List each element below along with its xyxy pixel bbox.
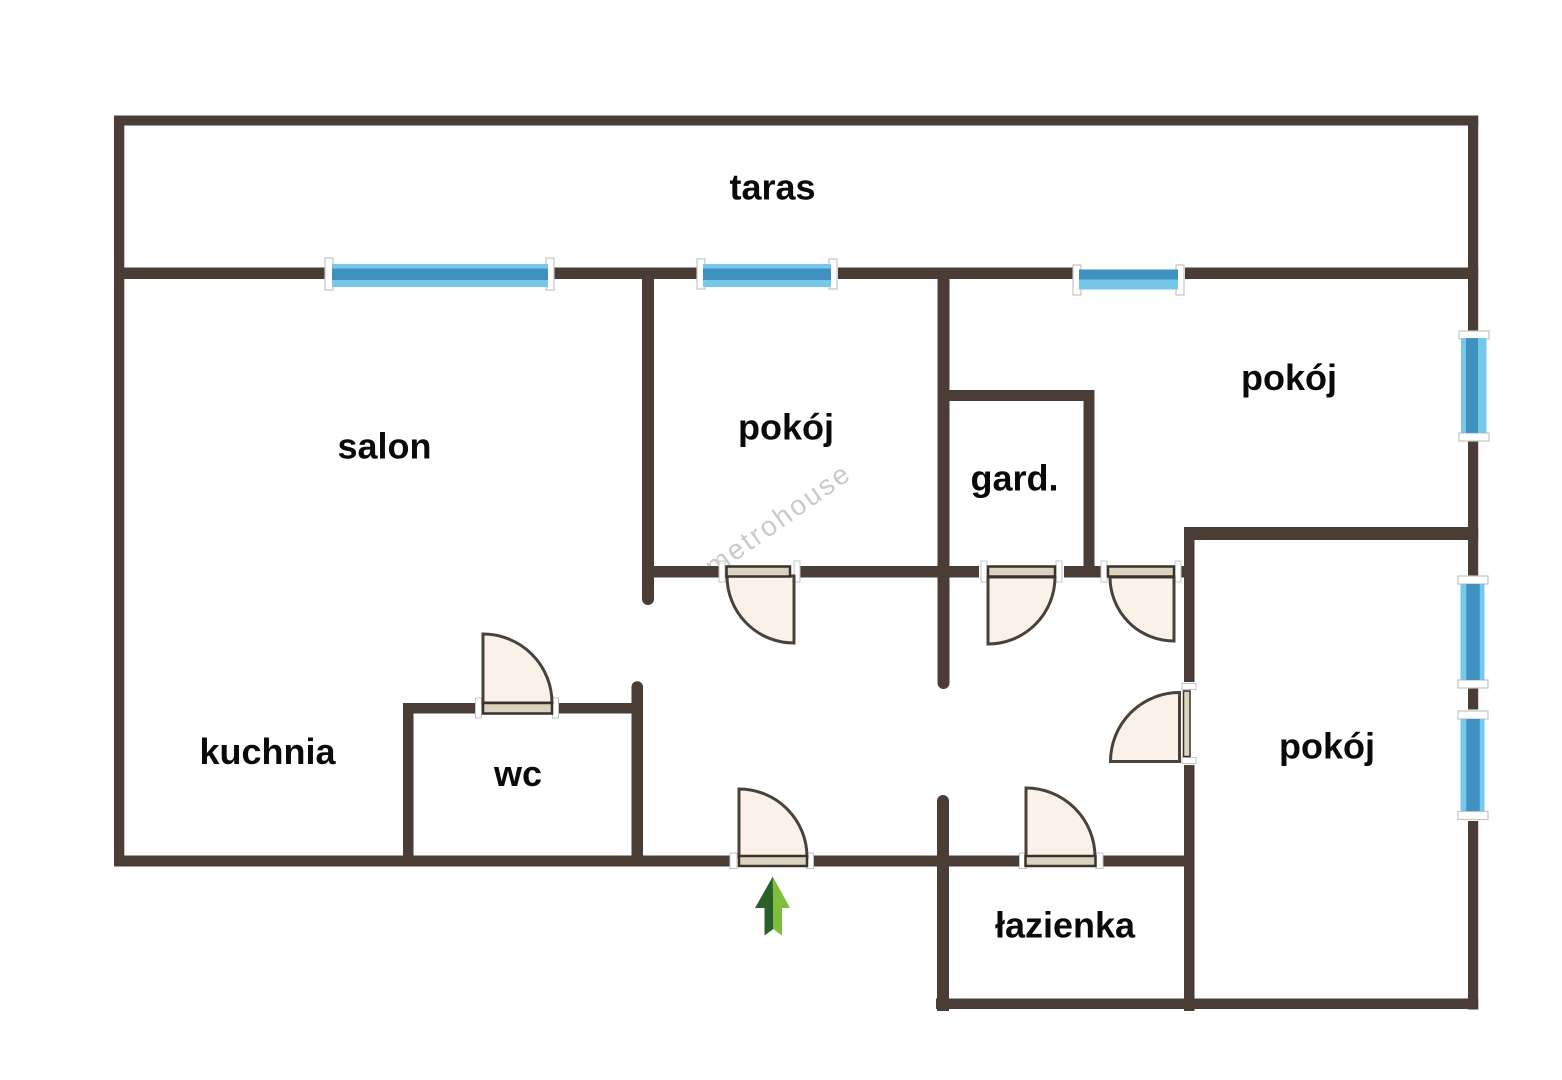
svg-text:taras: taras [729,167,815,208]
svg-text:wc: wc [493,753,542,794]
svg-text:gard.: gard. [970,458,1058,499]
svg-text:łazienka: łazienka [995,905,1136,946]
svg-text:kuchnia: kuchnia [199,731,336,772]
svg-text:salon: salon [337,426,431,467]
svg-text:pokój: pokój [1279,726,1375,767]
svg-text:pokój: pokój [738,407,834,448]
svg-text:pokój: pokój [1241,357,1337,398]
